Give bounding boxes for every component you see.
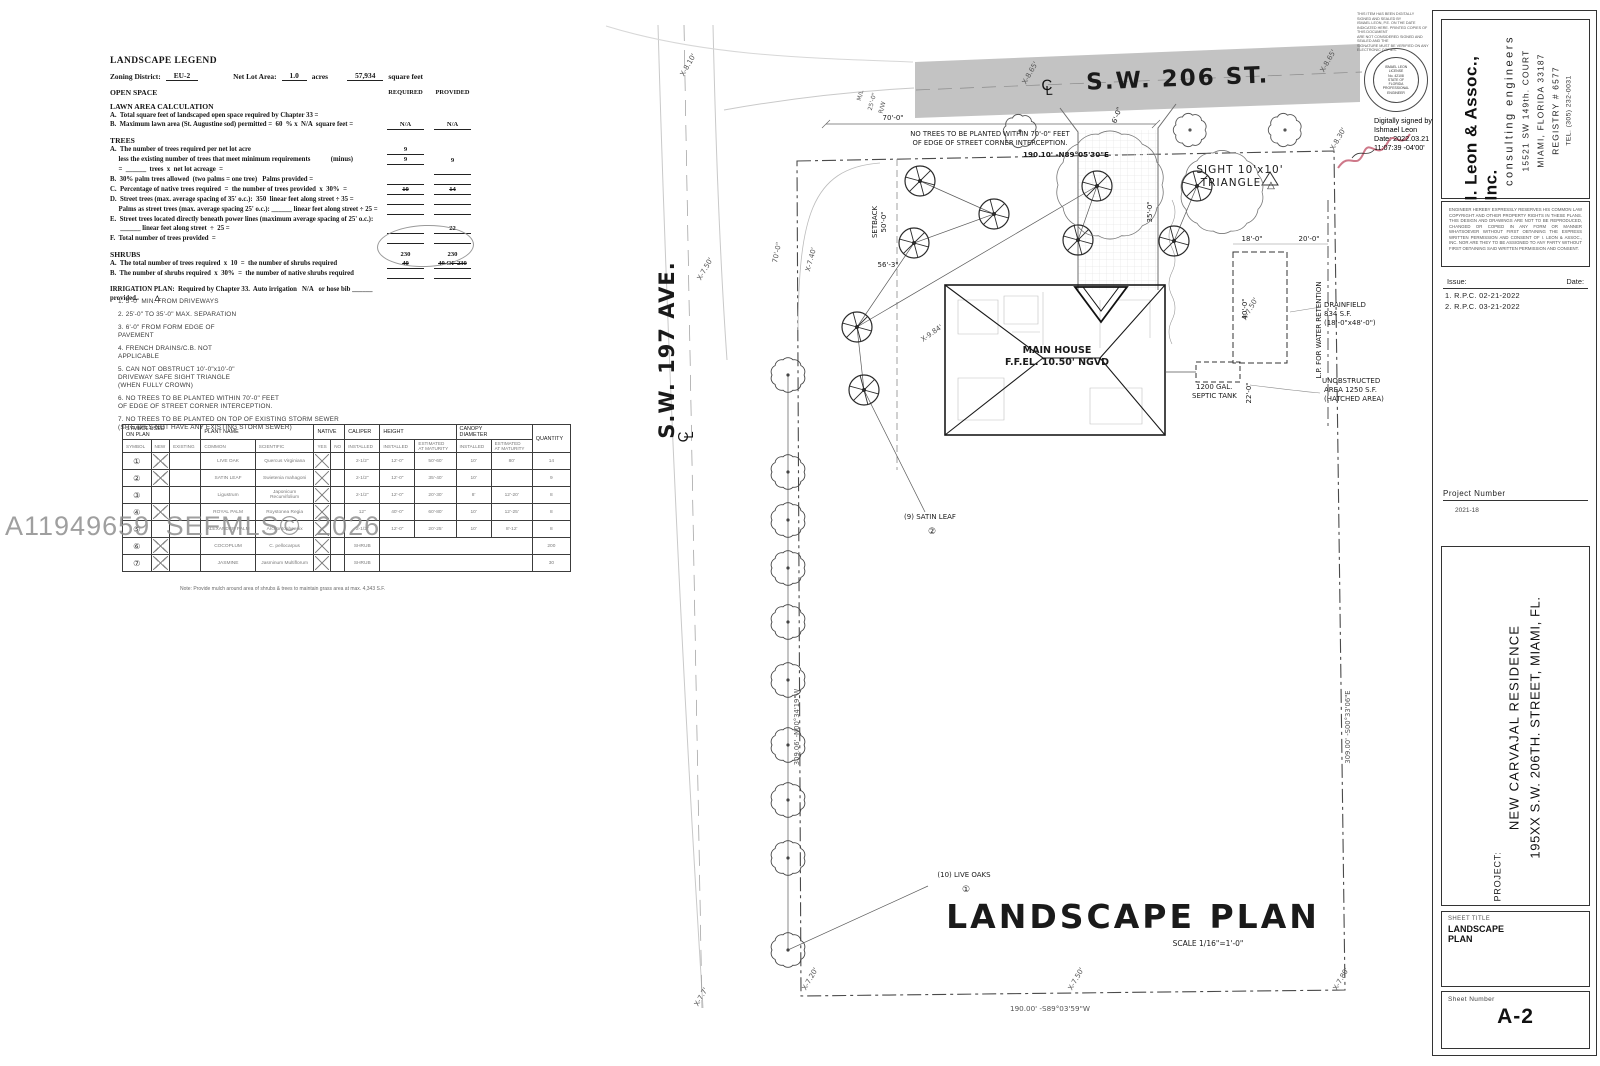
table-cell: Swietenia mahagoni bbox=[255, 470, 314, 487]
plan-label: (18'-0"x48'-0") bbox=[1324, 319, 1376, 327]
plant-schedule-table: SYMBOL USED ON PLANPLANT NAMENATIVECALIP… bbox=[122, 424, 571, 572]
plan-label: X-9.84' bbox=[920, 323, 945, 344]
table-col-group: SYMBOL USED ON PLAN bbox=[123, 425, 201, 440]
company-address1: 15521 SW 149th. COURT bbox=[1520, 49, 1530, 171]
legend-row: E. Street trees located directly beneath… bbox=[110, 215, 476, 224]
plan-note: 3. 6'-0" FROM FORM EDGE OF PAVEMENT bbox=[118, 324, 368, 340]
satin-leaf-tree-symbol bbox=[905, 166, 935, 196]
tree-canopy-cloud bbox=[1181, 150, 1263, 233]
table-col-group: QUANTITY bbox=[532, 425, 570, 453]
plan-label: SEPTIC TANK bbox=[1192, 392, 1237, 400]
plan-label: R/W bbox=[878, 101, 888, 115]
plan-label: 834 S.F. bbox=[1324, 310, 1351, 318]
project-number-label: Project Number bbox=[1443, 489, 1588, 501]
legend-rows: OPEN SPACEREQUIREDPROVIDEDLAWN AREA CALC… bbox=[110, 88, 476, 303]
table-cell: Ligustrum bbox=[201, 487, 255, 504]
table-cell: ⑦ bbox=[123, 555, 152, 572]
table-cell: 8'-12' bbox=[491, 521, 532, 538]
x-mark bbox=[153, 454, 169, 468]
plan-label: X-7.40' bbox=[804, 247, 818, 273]
plan-label: UNOBSTRUCTED bbox=[1322, 377, 1380, 385]
plan-label: (10) LIVE OAKS bbox=[937, 871, 991, 879]
netlot-label: Net Lot Area: bbox=[233, 72, 276, 81]
table-cell: 10' bbox=[456, 504, 491, 521]
table-col-header: INSTALLED bbox=[456, 440, 491, 453]
engineer-seal-text: ISMAEL LEONLICENSENo. 42108STATE OFFLORI… bbox=[1373, 57, 1419, 103]
table-cell: 9 bbox=[532, 470, 570, 487]
table-col-header: NEW bbox=[151, 440, 170, 453]
table-cell: 8 bbox=[532, 504, 570, 521]
table-cell: 14 bbox=[532, 453, 570, 470]
company-box: I. Leon & Assoc., Inc. consulting engine… bbox=[1441, 19, 1590, 199]
no-trees-dimension bbox=[822, 120, 1160, 128]
plan-label: SIGHT 10'x10' bbox=[1196, 164, 1283, 176]
issue-row: 2. R.P.C. 03-21-2022 bbox=[1443, 300, 1588, 311]
table-cell: 20'-25' bbox=[415, 521, 456, 538]
plan-label: (HATCHED AREA) bbox=[1324, 395, 1384, 403]
plan-label: TRIANGLE bbox=[1200, 177, 1261, 189]
legend-row: less the existing number of trees that m… bbox=[110, 155, 476, 165]
plan-label: DRAINFIELD bbox=[1324, 301, 1366, 309]
table-cell: 20'-30' bbox=[415, 487, 456, 504]
plan-label: X-7.50' bbox=[1067, 966, 1086, 991]
legend-row: B. The number of shrubs required x 30% =… bbox=[110, 269, 476, 279]
existing-tree-symbol bbox=[1268, 113, 1301, 146]
plan-label: X-8.30' bbox=[1329, 126, 1348, 151]
table-row: ⑦JASMINEJasminum MultiflorumSHRUB30 bbox=[123, 555, 571, 572]
table-cell: 10' bbox=[456, 470, 491, 487]
plan-label: X-8.10' bbox=[679, 52, 698, 77]
svg-text:L: L bbox=[1045, 83, 1053, 98]
table-cell: 30 bbox=[532, 555, 570, 572]
company-address2: MIAMI, FLORIDA 33187 bbox=[1535, 53, 1545, 167]
project-address: 195XX S.W. 206TH. STREET, MIAMI, FL. bbox=[1527, 596, 1542, 858]
sf-word: square feet bbox=[388, 72, 423, 81]
table-cell: LIVE OAK bbox=[201, 453, 255, 470]
table-col-group: HEIGHT bbox=[380, 425, 456, 440]
issue-row: 1. R.P.C. 02-21-2022 bbox=[1443, 289, 1588, 300]
tree-connectors bbox=[788, 181, 1197, 950]
plan-label: 70'-0" bbox=[771, 241, 783, 263]
zoning-row: Zoning District: EU-2 Net Lot Area: 1.0 … bbox=[110, 71, 476, 81]
satin-leaf-tree-symbol bbox=[979, 199, 1009, 229]
plant-table-header: SYMBOL USED ON PLANPLANT NAMENATIVECALIP… bbox=[123, 425, 571, 453]
sheet-number: A-2 bbox=[1448, 1005, 1583, 1029]
plan-label: 56'-3" bbox=[877, 261, 898, 269]
table-cell: 8 bbox=[532, 521, 570, 538]
satin-leaf-tree-symbol bbox=[842, 312, 872, 342]
existing-tree-symbol bbox=[1173, 113, 1206, 146]
legend-row: = ______ trees x net lot acreage = bbox=[110, 165, 476, 175]
table-cell: 12'-0" bbox=[380, 470, 415, 487]
plan-label: 309.06' -N00°34'19"W bbox=[793, 689, 801, 766]
plan-label: SETBACK bbox=[871, 206, 879, 238]
plan-label: X-7.7' bbox=[693, 986, 710, 1007]
plan-label: 190.10' -N89°05'30"E bbox=[1023, 150, 1109, 159]
plan-label: L.P. FOR WATER RETENTION bbox=[1315, 281, 1323, 378]
company-tagline: consulting engineers bbox=[1503, 35, 1515, 186]
legend-row: C. Percentage of native trees required =… bbox=[110, 185, 476, 195]
table-col-header: SYMBOL bbox=[123, 440, 152, 453]
plan-label: ① bbox=[962, 885, 970, 895]
table-cell: SHRUB bbox=[345, 555, 380, 572]
satin-leaf-tree-symbol bbox=[849, 375, 879, 405]
issue-area: Issue: Date: 1. R.P.C. 02-21-20222. R.P.… bbox=[1443, 277, 1588, 311]
table-cell bbox=[314, 487, 331, 504]
table-cell: JASMINE bbox=[201, 555, 255, 572]
plan-label: F.F.EL. 10.50' NGVD bbox=[1005, 357, 1109, 368]
table-cell bbox=[331, 470, 345, 487]
table-cell: SATIN LEAF bbox=[201, 470, 255, 487]
plan-note: 1. 5'-0" MIN. FROM DRIVEWAYS bbox=[118, 298, 368, 306]
table-col-header: SCIENTIFIC bbox=[255, 440, 314, 453]
plan-label: 25'-0" bbox=[867, 92, 878, 111]
septic-tank bbox=[1165, 362, 1240, 382]
company-name: I. Leon & Assoc., Inc. bbox=[1461, 20, 1501, 200]
netlot-sf: 57,934 bbox=[347, 71, 383, 81]
sheet-number-label: Sheet Number bbox=[1448, 996, 1583, 1003]
table-row: ③LigustrumJaponicum Recurvifolium2-1/2"1… bbox=[123, 487, 571, 504]
table-cell bbox=[331, 453, 345, 470]
property-boundary bbox=[797, 151, 1345, 996]
plan-label: 22'-0" bbox=[1245, 382, 1253, 403]
x-mark bbox=[315, 454, 329, 468]
table-row: ②SATIN LEAFSwietenia mahagoni2-1/2"12'-0… bbox=[123, 470, 571, 487]
table-cell bbox=[151, 453, 170, 470]
table-cell bbox=[380, 538, 532, 555]
project-name: NEW CARVAJAL RESIDENCE bbox=[1506, 624, 1521, 829]
tree-symbols: CLCL bbox=[675, 77, 1301, 968]
netlot-acres: 1.0 bbox=[282, 71, 307, 81]
svg-text:L: L bbox=[681, 431, 696, 438]
x-mark bbox=[153, 471, 169, 485]
table-col-header: YES bbox=[314, 440, 331, 453]
sheet-number-box: Sheet Number A-2 bbox=[1441, 991, 1590, 1049]
plan-label: 20'-0" bbox=[1298, 235, 1319, 243]
table-cell bbox=[491, 470, 532, 487]
table-cell: 50'-60' bbox=[415, 453, 456, 470]
plan-label: (9) SATIN LEAF bbox=[904, 513, 956, 521]
plan-label: X-7.50' bbox=[696, 256, 715, 281]
table-cell: 200 bbox=[532, 538, 570, 555]
table-cell: 35'-40' bbox=[415, 470, 456, 487]
legend-row: OPEN SPACEREQUIREDPROVIDED bbox=[110, 88, 476, 97]
table-cell: 2-1/2" bbox=[345, 453, 380, 470]
legend-title: LANDSCAPE LEGEND bbox=[110, 56, 476, 66]
table-cell: 2-1/2" bbox=[345, 470, 380, 487]
plan-note: 2. 25'-0" TO 35'-0" MAX. SEPARATION bbox=[118, 311, 368, 319]
plant-table-note: Note: Provide mulch around area of shrub… bbox=[180, 586, 385, 592]
legend-row: TREES bbox=[110, 136, 476, 145]
table-cell: 12'-25' bbox=[491, 504, 532, 521]
table-col-group: CANOPY DIAMETER bbox=[456, 425, 532, 440]
plan-label: S.W. 197 AVE. bbox=[655, 261, 679, 438]
plan-label: △ bbox=[1267, 180, 1275, 191]
table-cell bbox=[314, 453, 331, 470]
plan-label: 190.00' -S89°03'59"W bbox=[1010, 1004, 1090, 1013]
table-cell bbox=[170, 470, 201, 487]
table-col-group: CALIPER bbox=[345, 425, 380, 440]
digital-seal-certification-text: THIS ITEM HAS BEEN DIGITALLY SIGNED AND … bbox=[1357, 12, 1431, 53]
plan-note: 6. NO TREES TO BE PLANTED WITHIN 70'-0" … bbox=[118, 395, 368, 411]
table-cell: 12'-0" bbox=[380, 453, 415, 470]
table-cell: 2-1/2" bbox=[345, 487, 380, 504]
driveway bbox=[1060, 104, 1176, 290]
table-cell bbox=[331, 487, 345, 504]
plan-note: 5. CAN NOT OBSTRUCT 10'-0"x10'-0" DRIVEW… bbox=[118, 366, 368, 390]
table-cell: 80' bbox=[491, 453, 532, 470]
project-label: PROJECT: bbox=[1492, 851, 1502, 901]
table-col-group: NATIVE bbox=[314, 425, 345, 440]
plan-label: LANDSCAPE PLAN bbox=[946, 897, 1320, 936]
table-cell: 10' bbox=[456, 453, 491, 470]
company-tel: TEL. (305) 232-0031 bbox=[1565, 75, 1572, 145]
legend-row: D. Street trees (max. average spacing of… bbox=[110, 195, 476, 205]
table-col-group: PLANT NAME bbox=[201, 425, 314, 440]
plan-label: NO TREES TO BE PLANTED WITHIN 70'-0" FEE… bbox=[910, 130, 1070, 138]
company-registry: REGISTRY # 6577 bbox=[1550, 66, 1560, 154]
digital-signature-text: Digitally signed by Ishmael Leon Date: 2… bbox=[1374, 116, 1432, 152]
legend-row: A. Total square feet of landscaped open … bbox=[110, 111, 476, 120]
legend-row: B. 30% palm trees allowed (two palms = o… bbox=[110, 175, 476, 185]
seal-line: PROFESSIONAL ENGINEER bbox=[1374, 86, 1418, 94]
plan-note: 4. FRENCH DRAINS/C.B. NOT APPLICABLE bbox=[118, 345, 368, 361]
plan-label: OF EDGE OF STREET CORNER INTERCEPTION. bbox=[912, 139, 1067, 147]
table-col-header: ESTIMATED AT MATURITY bbox=[415, 440, 456, 453]
table-col-header: ESTIMATED AT MATURITY bbox=[491, 440, 532, 453]
plan-label: 50'-0" bbox=[880, 211, 888, 232]
zoning-label: Zoning District: bbox=[110, 72, 161, 81]
table-cell bbox=[170, 555, 201, 572]
plan-labels: S.W. 206 ST.S.W. 197 AVE.190.10' -N89°05… bbox=[655, 48, 1384, 1013]
legend-row: A. The number of trees required per net … bbox=[110, 145, 476, 155]
table-cell: 40'-0" bbox=[380, 504, 415, 521]
x-mark bbox=[153, 556, 169, 570]
date-label: Date: bbox=[1566, 277, 1584, 286]
plan-label: MAIN HOUSE bbox=[1023, 345, 1092, 356]
table-cell: 10' bbox=[456, 521, 491, 538]
table-cell: 8' bbox=[456, 487, 491, 504]
plan-label: 1200 GAL. bbox=[1196, 383, 1232, 391]
acres-word: acres bbox=[312, 72, 328, 81]
table-cell: Japonicum Recurvifolium bbox=[255, 487, 314, 504]
plan-label: 18'-0" bbox=[1241, 235, 1262, 243]
table-cell bbox=[151, 470, 170, 487]
table-cell: ② bbox=[123, 470, 152, 487]
table-cell: ① bbox=[123, 453, 152, 470]
table-col-header: INSTALLED bbox=[345, 440, 380, 453]
table-cell bbox=[380, 555, 532, 572]
plan-label: 40'-0" bbox=[1241, 298, 1249, 319]
plan-label: M/L bbox=[856, 89, 866, 102]
legend-row: B. Maximum lawn area (St. Augustine sod)… bbox=[110, 120, 476, 130]
table-cell bbox=[151, 555, 170, 572]
table-cell: 12'-0" bbox=[380, 487, 415, 504]
project-box: PROJECT: NEW CARVAJAL RESIDENCE 195XX S.… bbox=[1441, 546, 1590, 906]
title-block: I. Leon & Assoc., Inc. consulting engine… bbox=[1432, 10, 1597, 1056]
table-cell: 12'-0" bbox=[380, 521, 415, 538]
issue-rows: 1. R.P.C. 02-21-20222. R.P.C. 03-21-2022 bbox=[1443, 289, 1588, 311]
table-cell: 8 bbox=[532, 487, 570, 504]
planting-notes: 1. 5'-0" MIN. FROM DRIVEWAYS2. 25'-0" TO… bbox=[118, 298, 368, 437]
satin-leaf-tree-symbol bbox=[1159, 226, 1189, 256]
table-col-header: COMMON bbox=[201, 440, 255, 453]
plan-label: X-7.80' bbox=[1332, 966, 1351, 991]
table-col-header: EXISTING bbox=[170, 440, 201, 453]
table-row: ①LIVE OAKQuercus Virginiana2-1/2"12'-0"5… bbox=[123, 453, 571, 470]
table-cell bbox=[314, 555, 331, 572]
zoning-value: EU-2 bbox=[166, 71, 198, 81]
plan-label: SCALE 1/16"=1'-0" bbox=[1173, 939, 1244, 948]
table-col-header: INSTALLED bbox=[380, 440, 415, 453]
x-mark bbox=[315, 556, 329, 570]
table-cell bbox=[151, 487, 170, 504]
legend-row: Palms as street trees (max. average spac… bbox=[110, 205, 476, 215]
issue-label: Issue: bbox=[1447, 277, 1467, 286]
table-cell: 12'-20' bbox=[491, 487, 532, 504]
satin-leaf-tree-symbol bbox=[899, 228, 929, 258]
table-cell: 60'-80' bbox=[415, 504, 456, 521]
sw-197-avenue-lines bbox=[606, 25, 914, 1008]
plan-label: AREA 1250 S.F. bbox=[1324, 386, 1377, 394]
corner-radius bbox=[798, 163, 880, 330]
project-info: PROJECT: NEW CARVAJAL RESIDENCE 195XX S.… bbox=[1442, 547, 1591, 907]
plan-label: ② bbox=[928, 527, 936, 537]
table-cell bbox=[331, 555, 345, 572]
table-cell bbox=[314, 470, 331, 487]
engineer-seal: ISMAEL LEONLICENSENo. 42108STATE OFFLORI… bbox=[1364, 48, 1428, 112]
sheet-title-box: SHEET TITLE LANDSCAPE PLAN bbox=[1441, 911, 1590, 987]
table-cell: ③ bbox=[123, 487, 152, 504]
leader-lines bbox=[1169, 200, 1328, 393]
legend-row: LAWN AREA CALCULATION bbox=[110, 102, 476, 111]
landscape-plan-sheet: { "watermark": "A11949659 SEFMLS© 2026",… bbox=[0, 0, 1600, 1066]
x-mark bbox=[315, 471, 329, 485]
table-cell bbox=[170, 487, 201, 504]
plan-label: 70'-0" bbox=[882, 114, 903, 122]
x-mark bbox=[315, 488, 329, 502]
table-cell bbox=[170, 453, 201, 470]
plan-label: 309.00' -S00°33'06"E bbox=[1344, 690, 1352, 763]
issue-header: Issue: Date: bbox=[1443, 277, 1588, 289]
company-info: I. Leon & Assoc., Inc. consulting engine… bbox=[1442, 20, 1591, 200]
project-number-value: 2021-18 bbox=[1455, 507, 1479, 514]
table-col-header: NO bbox=[331, 440, 345, 453]
plan-label: X-7.20' bbox=[801, 966, 820, 991]
copyright-disclaimer: ENGINEER HEREBY EXPRESSLY RESERVES HIS C… bbox=[1441, 201, 1590, 267]
table-cell: Quercus Virginiana bbox=[255, 453, 314, 470]
sheet-title-label: SHEET TITLE bbox=[1448, 916, 1583, 922]
table-cell: Jasminum Multiflorum bbox=[255, 555, 314, 572]
mls-watermark: A11949659 SEFMLS© 2026 bbox=[5, 511, 380, 542]
sheet-title: LANDSCAPE PLAN bbox=[1448, 924, 1518, 944]
plan-label: 35'-0" bbox=[1146, 201, 1154, 222]
